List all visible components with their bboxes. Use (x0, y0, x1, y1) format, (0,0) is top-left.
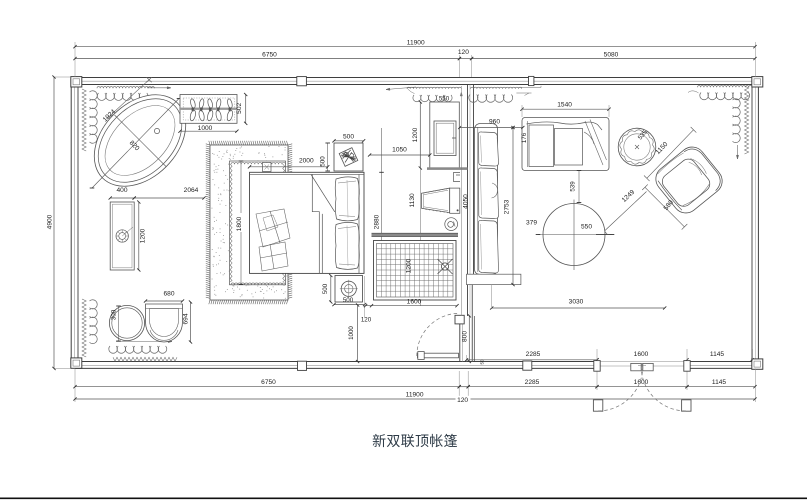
svg-text:1000: 1000 (198, 125, 213, 132)
svg-text:500: 500 (320, 156, 327, 167)
svg-text:1050: 1050 (392, 147, 407, 154)
svg-text:1130: 1130 (409, 193, 416, 208)
svg-text:379: 379 (526, 220, 537, 227)
svg-text:1600: 1600 (634, 351, 649, 358)
svg-text:4900: 4900 (47, 214, 54, 229)
svg-text:6750: 6750 (261, 379, 276, 386)
svg-text:6750: 6750 (262, 51, 277, 58)
svg-text:1200: 1200 (140, 228, 147, 243)
svg-text:2285: 2285 (525, 379, 540, 386)
svg-text:800: 800 (462, 331, 469, 342)
svg-text:694: 694 (183, 313, 190, 324)
svg-text:2000: 2000 (299, 158, 314, 165)
svg-text:2064: 2064 (184, 187, 199, 194)
svg-text:550: 550 (439, 96, 450, 103)
svg-text:120: 120 (457, 397, 468, 404)
svg-text:1800: 1800 (236, 216, 243, 231)
svg-text:1145: 1145 (710, 351, 725, 358)
svg-text:500: 500 (343, 297, 354, 304)
svg-text:1600: 1600 (634, 379, 649, 386)
svg-text:120: 120 (458, 49, 469, 56)
svg-text:400: 400 (116, 187, 127, 194)
svg-text:新双联顶帐篷: 新双联顶帐篷 (372, 433, 458, 449)
svg-text:1600: 1600 (407, 298, 422, 305)
svg-text:1200: 1200 (406, 258, 413, 273)
svg-text:502: 502 (236, 102, 243, 113)
svg-text:176: 176 (521, 132, 528, 143)
svg-text:960: 960 (489, 119, 500, 126)
svg-text:500: 500 (343, 133, 354, 140)
svg-text:5080: 5080 (604, 51, 619, 58)
svg-text:3030: 3030 (569, 298, 584, 305)
svg-text:120: 120 (361, 317, 372, 324)
svg-text:680: 680 (163, 290, 174, 297)
svg-text:539: 539 (570, 181, 577, 192)
svg-text:500: 500 (322, 283, 329, 294)
svg-text:300: 300 (111, 309, 118, 320)
svg-text:11900: 11900 (406, 392, 424, 399)
svg-text:1540: 1540 (557, 102, 572, 109)
svg-text:11900: 11900 (407, 40, 425, 47)
svg-text:4050: 4050 (462, 194, 469, 209)
svg-text:2880: 2880 (374, 214, 381, 229)
svg-text:2285: 2285 (526, 351, 541, 358)
svg-text:2753: 2753 (504, 199, 511, 214)
svg-text:550: 550 (581, 224, 592, 231)
svg-text:1200: 1200 (412, 127, 419, 142)
svg-text:1000: 1000 (348, 326, 355, 340)
svg-text:1145: 1145 (712, 379, 727, 386)
svg-text:50: 50 (480, 359, 485, 365)
